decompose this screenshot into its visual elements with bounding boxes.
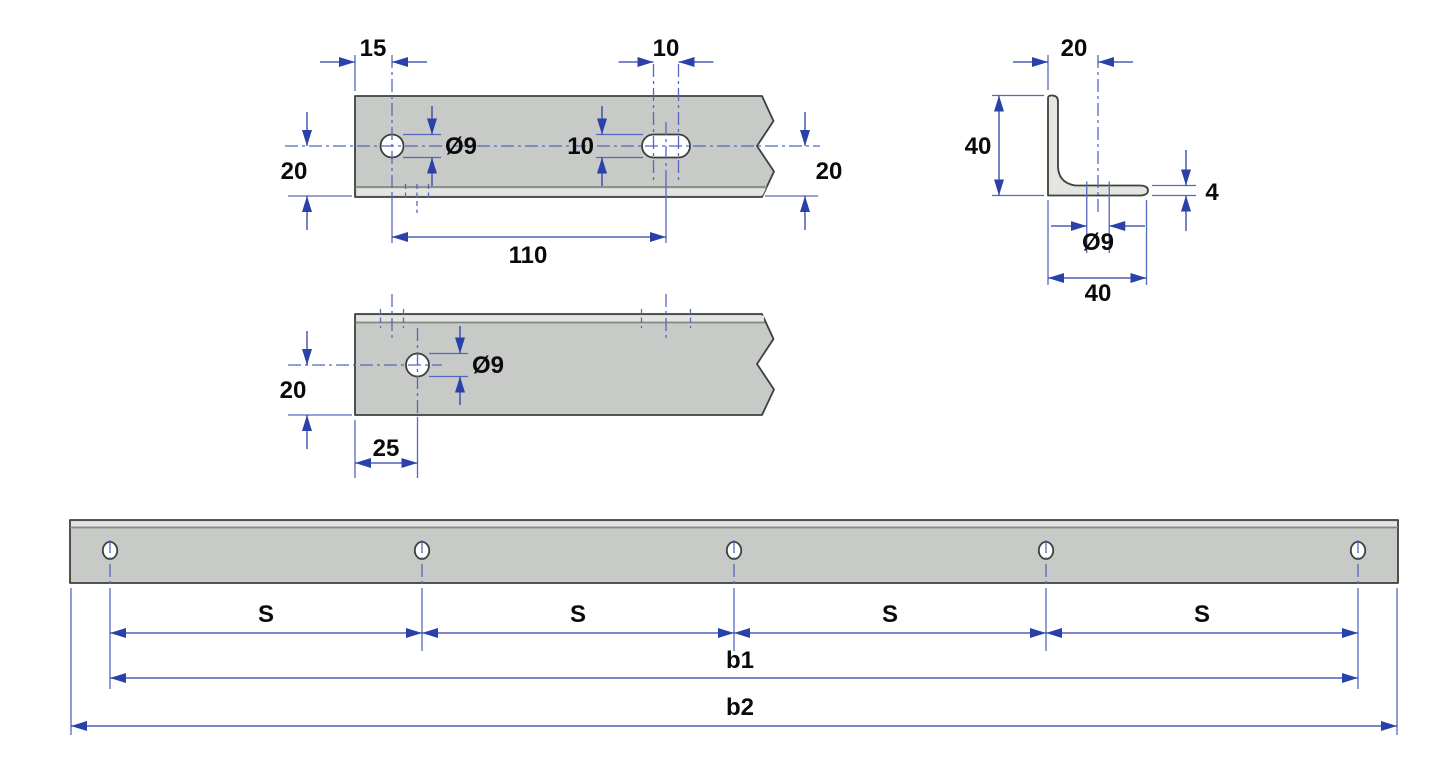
dim-label-s3: S <box>882 601 898 628</box>
dim-label-s1: S <box>258 601 274 628</box>
view-flat-bar-top: 15 10 Ø9 10 20 20 110 <box>281 35 843 269</box>
dim-label-slot-width: 10 <box>567 133 594 160</box>
dim-label-leg-height: 40 <box>965 133 992 160</box>
dim-label-20-left: 20 <box>281 158 308 185</box>
dim-label-s2: S <box>570 601 586 628</box>
dim-label-slot-10: 10 <box>653 35 680 62</box>
long-bar-edge-strip <box>71 522 1397 527</box>
dim-label-b1: b1 <box>726 647 754 674</box>
view-angle-profile: 20 40 4 Ø9 40 <box>965 35 1220 307</box>
view-flat-bar-side: 20 Ø9 25 <box>280 294 774 478</box>
dim-label-thickness: 4 <box>1205 179 1219 206</box>
dim-label-side-hole-diameter: Ø9 <box>472 352 504 379</box>
dim-label-15: 15 <box>360 35 387 62</box>
dim-label-s4: S <box>1194 601 1210 628</box>
dim-label-b2: b2 <box>726 694 754 721</box>
engineering-drawing-page: 15 10 Ø9 10 20 20 110 20 40 4 Ø9 40 <box>0 0 1445 773</box>
dim-label-leg-width: 40 <box>1085 280 1112 307</box>
dim-label-20-right: 20 <box>816 158 843 185</box>
dim-label-25: 25 <box>373 435 400 462</box>
dim-label-hole-offset: 20 <box>1061 35 1088 62</box>
flat-bar-top-edge-strip <box>357 189 767 196</box>
dim-label-hole-diameter: Ø9 <box>445 133 477 160</box>
dim-label-angle-hole-diameter: Ø9 <box>1082 229 1114 256</box>
dim-label-20-side: 20 <box>280 377 307 404</box>
dim-label-110: 110 <box>509 242 548 269</box>
view-long-bar: S S S S b1 b2 <box>70 520 1398 735</box>
flat-bar-side-edge-strip <box>357 316 765 322</box>
engineering-drawing-canvas: 15 10 Ø9 10 20 20 110 20 40 4 Ø9 40 <box>0 0 1445 773</box>
